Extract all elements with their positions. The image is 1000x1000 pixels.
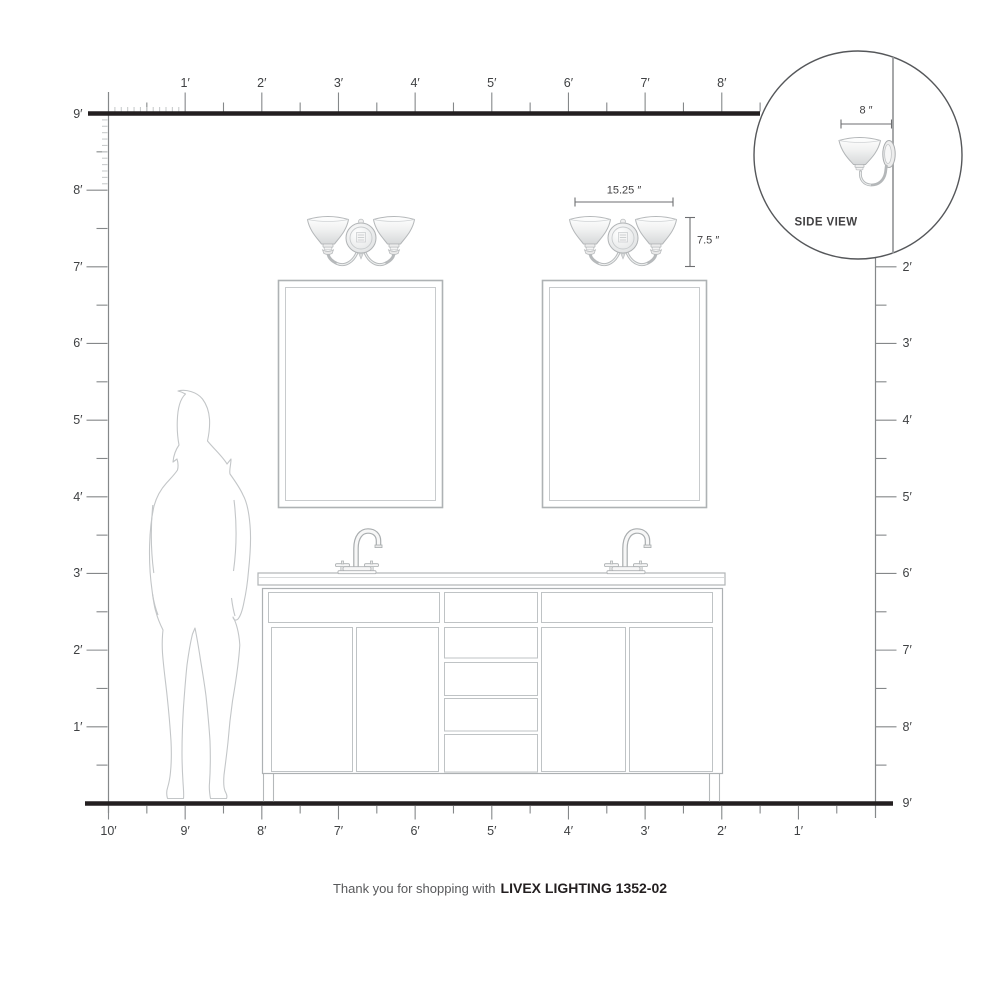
diagram-canvas: 1′2′3′4′5′6′7′8′9′8′7′6′5′4′3′2′1′2′3′4′… bbox=[0, 0, 1000, 1000]
ruler-label: 5′ bbox=[487, 76, 496, 89]
footer-note: Thank you for shopping withLIVEX LIGHTIN… bbox=[0, 880, 1000, 896]
ruler-label: 1′ bbox=[794, 824, 803, 837]
scale-drawing bbox=[0, 0, 1000, 1000]
ruler-label: 1′ bbox=[181, 76, 190, 89]
ruler-label: 2′ bbox=[903, 261, 912, 274]
ruler-label: 8′ bbox=[717, 76, 726, 89]
false-drawer-panel bbox=[542, 593, 713, 623]
ruler-label: 6′ bbox=[410, 824, 419, 837]
fixture-height-dimension-label: 7.5 ″ bbox=[697, 236, 719, 247]
ruler-label: 4′ bbox=[903, 414, 912, 427]
ruler-label: 7′ bbox=[640, 76, 649, 89]
vanity-light-fixture-left bbox=[308, 217, 415, 265]
footer-product: LIVEX LIGHTING 1352-02 bbox=[501, 880, 668, 896]
cabinet-door bbox=[630, 628, 713, 772]
ruler-label: 6′ bbox=[564, 76, 573, 89]
countertop bbox=[258, 573, 725, 585]
cabinet-drawer bbox=[445, 699, 538, 732]
ruler-label: 3′ bbox=[640, 824, 649, 837]
ruler-label: 3′ bbox=[334, 76, 343, 89]
ruler-label: 9′ bbox=[181, 824, 190, 837]
ruler-label: 7′ bbox=[334, 824, 343, 837]
cabinet-door bbox=[272, 628, 353, 772]
ruler-label: 8′ bbox=[73, 184, 82, 197]
cabinet-door bbox=[542, 628, 626, 772]
ruler-label: 4′ bbox=[564, 824, 573, 837]
ruler-label: 1′ bbox=[73, 721, 82, 734]
ruler-label: 5′ bbox=[487, 824, 496, 837]
ruler-label: 3′ bbox=[73, 567, 82, 580]
cabinet-drawer bbox=[445, 663, 538, 696]
ruler-label: 2′ bbox=[73, 644, 82, 657]
ruler-label: 5′ bbox=[903, 491, 912, 504]
false-drawer-panel bbox=[445, 593, 538, 623]
ruler-label: 4′ bbox=[410, 76, 419, 89]
mirror-right bbox=[543, 281, 707, 508]
ruler-label: 7′ bbox=[903, 644, 912, 657]
sink-faucet-right bbox=[605, 531, 652, 574]
cabinet-door bbox=[357, 628, 439, 772]
ruler-label: 3′ bbox=[903, 337, 912, 350]
ruler-label: 8′ bbox=[257, 824, 266, 837]
ruler-label: 6′ bbox=[73, 337, 82, 350]
false-drawer-panel bbox=[269, 593, 440, 623]
sink-faucet-left bbox=[336, 531, 383, 574]
side-view-inset bbox=[754, 51, 962, 259]
ruler-label: 10′ bbox=[100, 824, 116, 837]
ruler-label: 8′ bbox=[903, 721, 912, 734]
footer-prefix: Thank you for shopping with bbox=[333, 881, 496, 896]
cabinet-drawer bbox=[445, 735, 538, 773]
ruler-label: 4′ bbox=[73, 491, 82, 504]
ruler-label: 5′ bbox=[73, 414, 82, 427]
mirror-left bbox=[279, 281, 443, 508]
ruler-label: 2′ bbox=[717, 824, 726, 837]
side-view-label: SIDE VIEW bbox=[794, 217, 857, 229]
sconce-width-dimension-label: 8 ″ bbox=[859, 106, 872, 117]
ruler-label: 7′ bbox=[73, 261, 82, 274]
vanity-cabinet bbox=[258, 573, 725, 802]
cabinet-drawer bbox=[445, 628, 538, 659]
ruler-label: 2′ bbox=[257, 76, 266, 89]
vanity-light-fixture-right bbox=[570, 217, 677, 265]
fixture-width-dimension-label: 15.25 ″ bbox=[607, 186, 641, 197]
ruler-label: 9′ bbox=[903, 797, 912, 810]
human-silhouette bbox=[150, 390, 251, 798]
ruler-label: 9′ bbox=[73, 107, 82, 120]
ruler-label: 6′ bbox=[903, 567, 912, 580]
